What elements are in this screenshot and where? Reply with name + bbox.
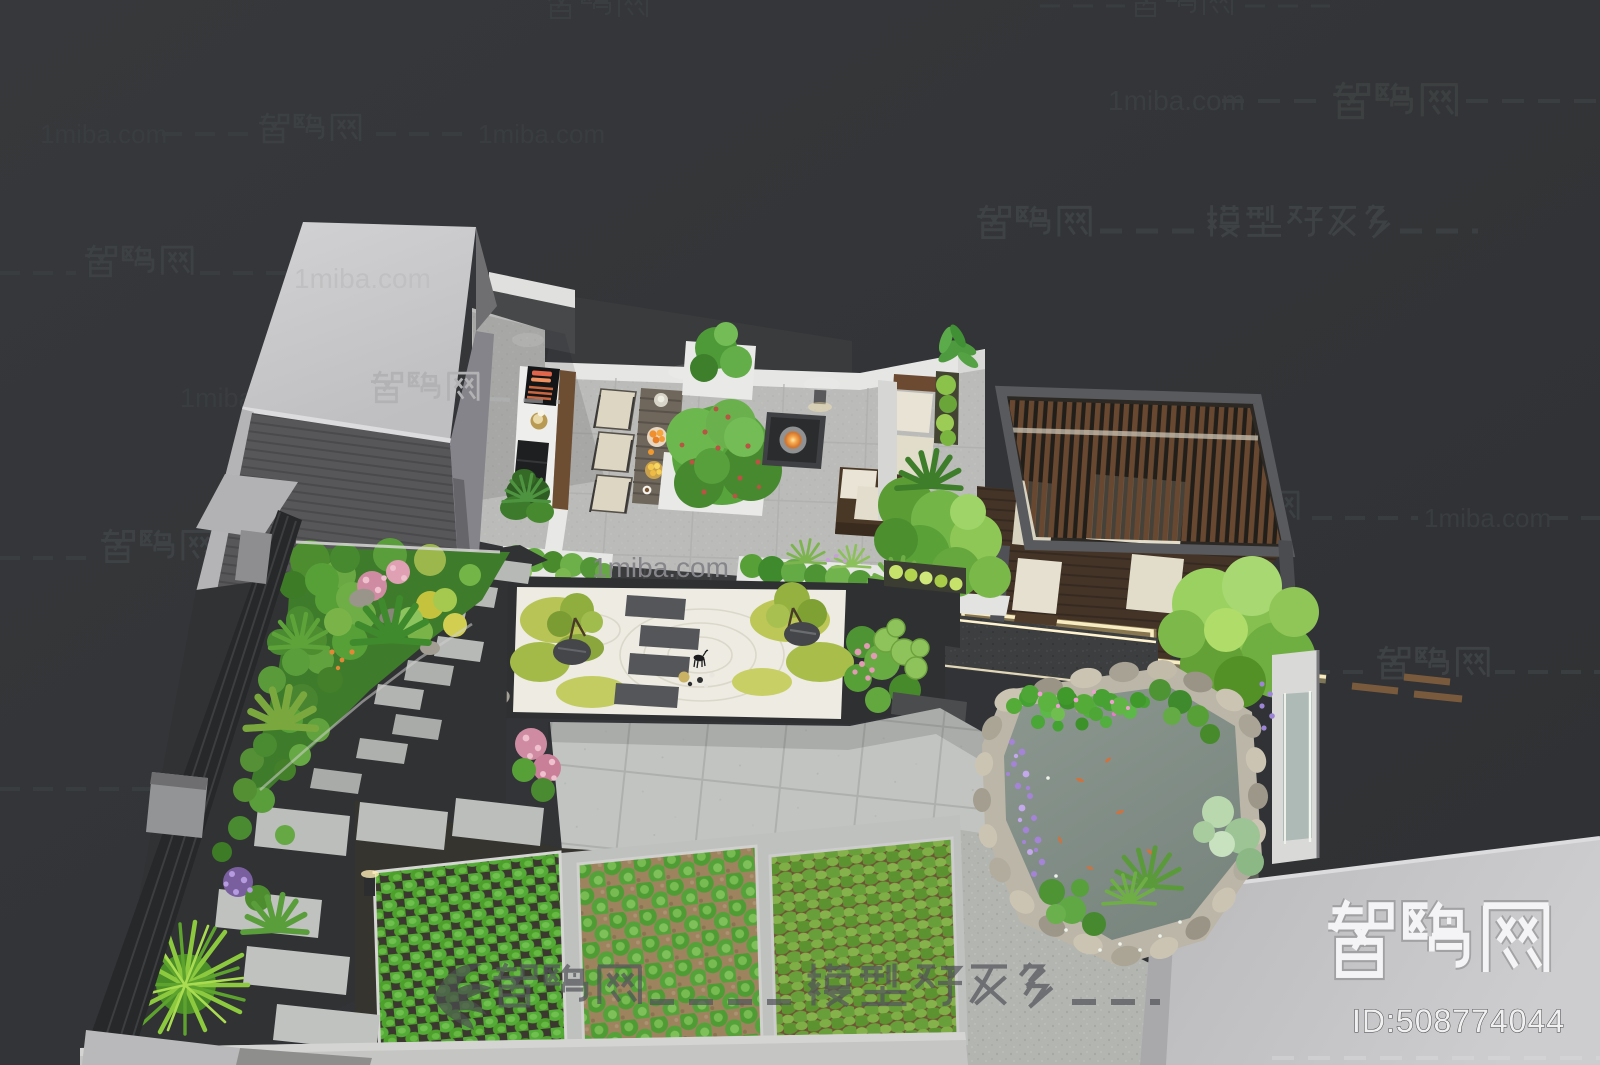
svg-text:1miba.com: 1miba.com [40,119,167,149]
svg-text:ID:508774044: ID:508774044 [1352,1003,1565,1039]
svg-text:1miba.com: 1miba.com [478,119,605,149]
svg-text:1miba.com: 1miba.com [294,263,431,294]
svg-text:1miba.com: 1miba.com [1424,503,1551,533]
svg-text:1miba.com: 1miba.com [592,552,729,583]
